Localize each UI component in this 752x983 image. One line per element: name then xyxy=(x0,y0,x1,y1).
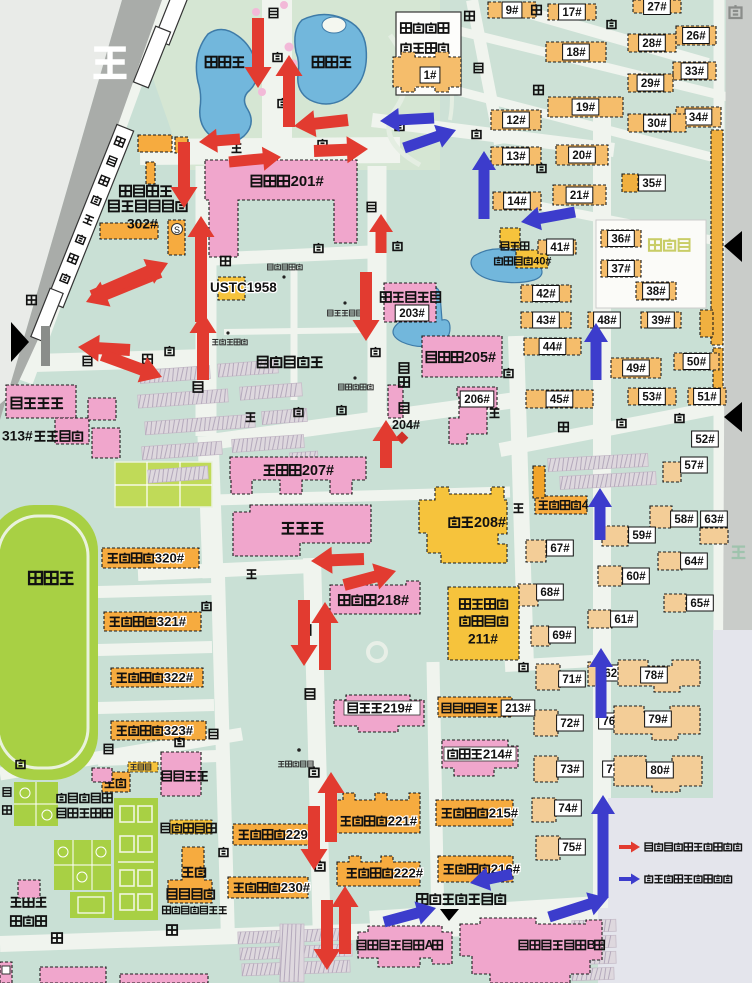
svg-text:321#: 321# xyxy=(157,614,187,629)
svg-text:29#: 29# xyxy=(641,78,661,90)
svg-text:37#: 37# xyxy=(611,264,631,276)
svg-text:60#: 60# xyxy=(626,571,646,583)
svg-text:28#: 28# xyxy=(642,38,662,50)
svg-text:63#: 63# xyxy=(704,514,724,526)
svg-text:42#: 42# xyxy=(536,289,556,301)
svg-text:33#: 33# xyxy=(685,66,705,78)
svg-text:45#: 45# xyxy=(550,394,570,406)
svg-text:USTC1958: USTC1958 xyxy=(210,280,277,295)
svg-text:302#: 302# xyxy=(127,217,158,232)
svg-text:69#: 69# xyxy=(552,630,572,642)
svg-text:80#: 80# xyxy=(650,765,670,777)
svg-text:20#: 20# xyxy=(572,150,592,162)
svg-text:27#: 27# xyxy=(647,2,667,14)
svg-text:204#: 204# xyxy=(392,418,420,432)
svg-text:205#: 205# xyxy=(464,350,496,366)
svg-text:215#: 215# xyxy=(489,805,519,820)
svg-text:219#: 219# xyxy=(383,700,413,715)
svg-text:61#: 61# xyxy=(614,614,634,626)
svg-text:58#: 58# xyxy=(674,514,694,526)
svg-text:S: S xyxy=(174,225,180,235)
svg-text:320#: 320# xyxy=(155,550,185,565)
svg-text:18#: 18# xyxy=(566,47,586,59)
svg-text:211#: 211# xyxy=(468,632,498,647)
svg-text:17#: 17# xyxy=(562,7,582,19)
svg-text:21#: 21# xyxy=(570,190,590,202)
svg-text:313#: 313# xyxy=(2,429,33,444)
svg-text:207#: 207# xyxy=(302,463,334,479)
svg-text:52#: 52# xyxy=(695,434,715,446)
svg-text:59#: 59# xyxy=(632,530,652,542)
svg-text:39#: 39# xyxy=(651,315,671,327)
svg-text:218#: 218# xyxy=(377,593,409,609)
svg-text:50#: 50# xyxy=(687,357,707,369)
svg-text:71#: 71# xyxy=(562,674,582,686)
svg-text:57#: 57# xyxy=(684,460,704,472)
svg-text:74#: 74# xyxy=(558,803,578,815)
svg-text:19#: 19# xyxy=(576,102,596,114)
svg-text:35#: 35# xyxy=(642,178,662,190)
svg-text:213#: 213# xyxy=(505,703,531,715)
svg-text:1#: 1# xyxy=(424,70,437,82)
svg-text:14#: 14# xyxy=(507,196,527,208)
svg-text:43#: 43# xyxy=(536,315,556,327)
svg-text:36#: 36# xyxy=(611,234,631,246)
svg-text:4: 4 xyxy=(582,498,589,512)
svg-text:48#: 48# xyxy=(597,315,617,327)
svg-text:30#: 30# xyxy=(647,118,667,130)
svg-text:13#: 13# xyxy=(506,151,526,163)
svg-text:65#: 65# xyxy=(690,598,710,610)
svg-text:203#: 203# xyxy=(399,308,425,320)
svg-text:221#: 221# xyxy=(388,813,418,828)
svg-text:67#: 67# xyxy=(550,543,570,555)
svg-text:79#: 79# xyxy=(648,714,668,726)
svg-text:75#: 75# xyxy=(562,842,582,854)
svg-text:49#: 49# xyxy=(626,363,646,375)
svg-text:9#: 9# xyxy=(506,5,519,17)
svg-text:12#: 12# xyxy=(506,115,526,127)
svg-text:206#: 206# xyxy=(464,394,490,406)
svg-text:73#: 73# xyxy=(560,764,580,776)
svg-text:53#: 53# xyxy=(642,392,662,404)
svg-text:208#: 208# xyxy=(474,515,506,531)
svg-text:51#: 51# xyxy=(697,392,717,404)
svg-text:26#: 26# xyxy=(686,31,706,43)
svg-text:34#: 34# xyxy=(689,112,709,124)
svg-text:78#: 78# xyxy=(644,670,664,682)
svg-text:222#: 222# xyxy=(394,865,424,880)
svg-text:322#: 322# xyxy=(164,670,194,685)
svg-text:214#: 214# xyxy=(483,746,513,761)
svg-text:72#: 72# xyxy=(560,718,580,730)
svg-text:201#: 201# xyxy=(291,174,325,190)
svg-text:41#: 41# xyxy=(550,242,570,254)
svg-text:64#: 64# xyxy=(684,556,704,568)
svg-text:38#: 38# xyxy=(646,286,666,298)
svg-text:44#: 44# xyxy=(543,342,563,354)
svg-text:68#: 68# xyxy=(540,587,560,599)
svg-text:230#: 230# xyxy=(281,880,311,895)
svg-text:40#: 40# xyxy=(533,256,551,268)
svg-text:323#: 323# xyxy=(164,723,194,738)
